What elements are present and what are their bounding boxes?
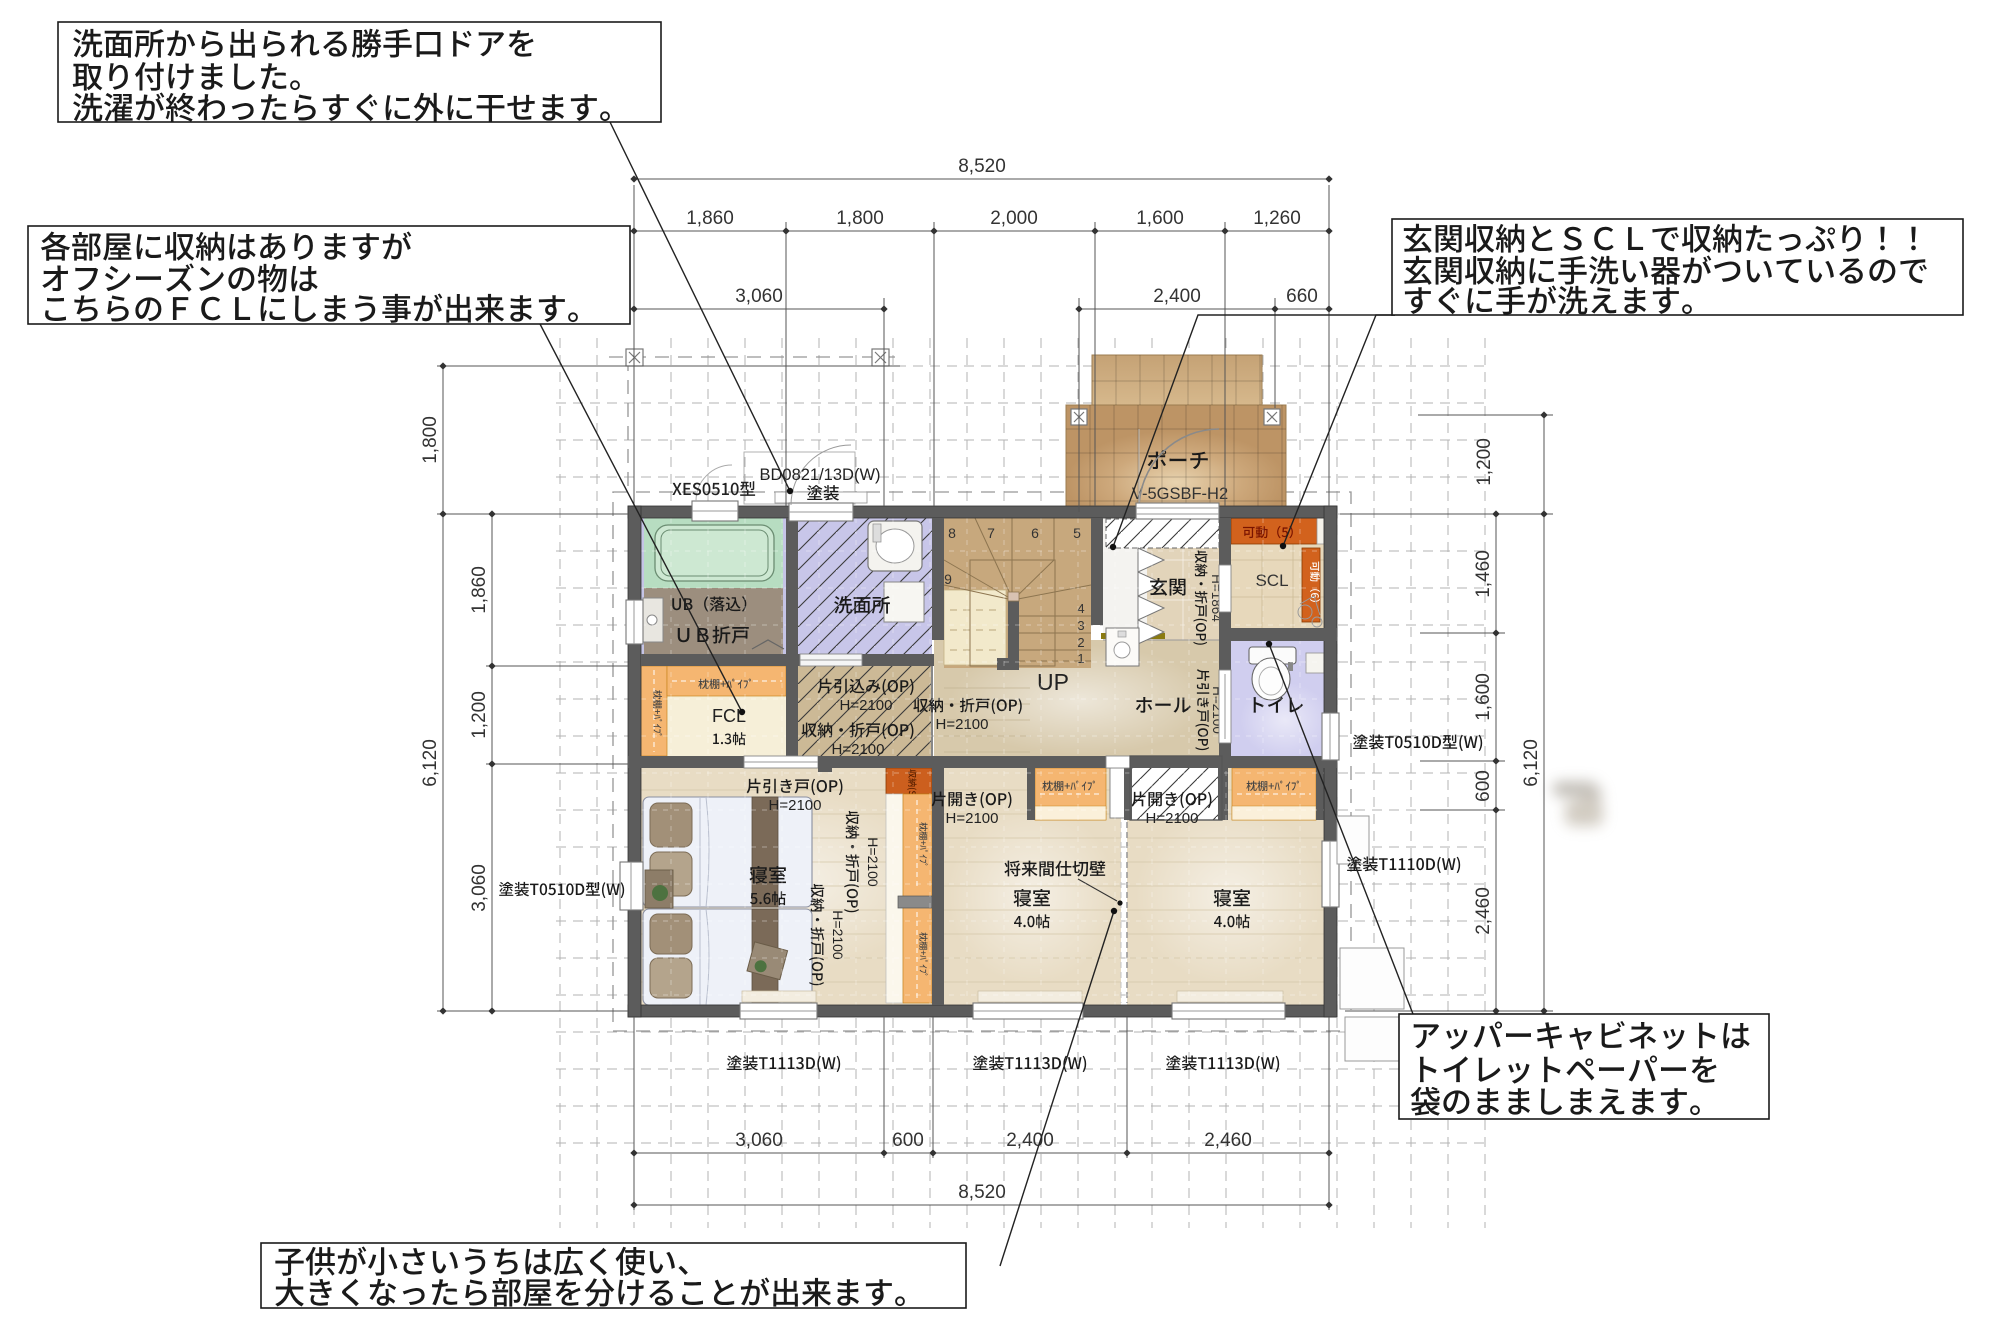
svg-text:600: 600	[892, 1130, 924, 1151]
svg-text:H=2100: H=2100	[832, 741, 885, 758]
svg-text:1,460: 1,460	[1473, 550, 1494, 598]
svg-text:2,000: 2,000	[990, 208, 1038, 229]
svg-text:V-5GSBF-H2: V-5GSBF-H2	[1132, 485, 1228, 503]
svg-text:5: 5	[1073, 525, 1081, 541]
svg-text:1,260: 1,260	[1253, 208, 1301, 229]
svg-text:BD0821/13D(W): BD0821/13D(W)	[759, 466, 880, 484]
svg-text:1,800: 1,800	[836, 208, 884, 229]
svg-text:3,060: 3,060	[735, 286, 783, 307]
svg-text:3,060: 3,060	[735, 1130, 783, 1151]
svg-text:1,200: 1,200	[469, 691, 490, 739]
svg-text:8: 8	[948, 525, 956, 541]
svg-text:UP: UP	[1037, 669, 1069, 695]
svg-text:1,860: 1,860	[469, 566, 490, 614]
svg-text:H=2100: H=2100	[830, 910, 846, 960]
svg-text:H=2100: H=2100	[840, 697, 893, 714]
svg-text:2,400: 2,400	[1153, 286, 1201, 307]
svg-text:1,800: 1,800	[420, 416, 441, 464]
svg-text:6: 6	[1031, 525, 1039, 541]
svg-text:3,060: 3,060	[469, 864, 490, 912]
svg-text:H=2100: H=2100	[936, 716, 989, 733]
svg-text:2,460: 2,460	[1204, 1130, 1252, 1151]
svg-text:9: 9	[944, 571, 952, 587]
svg-text:H=2100: H=2100	[865, 837, 881, 887]
svg-text:3: 3	[1077, 618, 1084, 633]
svg-text:6,120: 6,120	[1521, 739, 1542, 787]
svg-text:1,860: 1,860	[686, 208, 734, 229]
svg-text:8,520: 8,520	[958, 1182, 1006, 1203]
svg-text:1,600: 1,600	[1473, 673, 1494, 721]
svg-text:1: 1	[1077, 651, 1084, 666]
svg-text:1,600: 1,600	[1136, 208, 1184, 229]
svg-text:660: 660	[1286, 286, 1318, 307]
svg-text:H=2100: H=2100	[946, 810, 999, 827]
svg-text:H=2100: H=2100	[1146, 810, 1199, 827]
svg-text:H=2100: H=2100	[769, 797, 822, 814]
svg-text:2,400: 2,400	[1006, 1130, 1054, 1151]
svg-text:2: 2	[1077, 635, 1084, 650]
svg-text:1,200: 1,200	[1474, 438, 1495, 486]
svg-text:SCL: SCL	[1255, 571, 1288, 590]
svg-text:600: 600	[1473, 770, 1494, 802]
svg-text:7: 7	[987, 525, 995, 541]
svg-text:8,520: 8,520	[958, 156, 1006, 177]
svg-text:4: 4	[1077, 601, 1084, 616]
svg-text:6,120: 6,120	[420, 739, 441, 787]
svg-text:2,460: 2,460	[1473, 887, 1494, 935]
